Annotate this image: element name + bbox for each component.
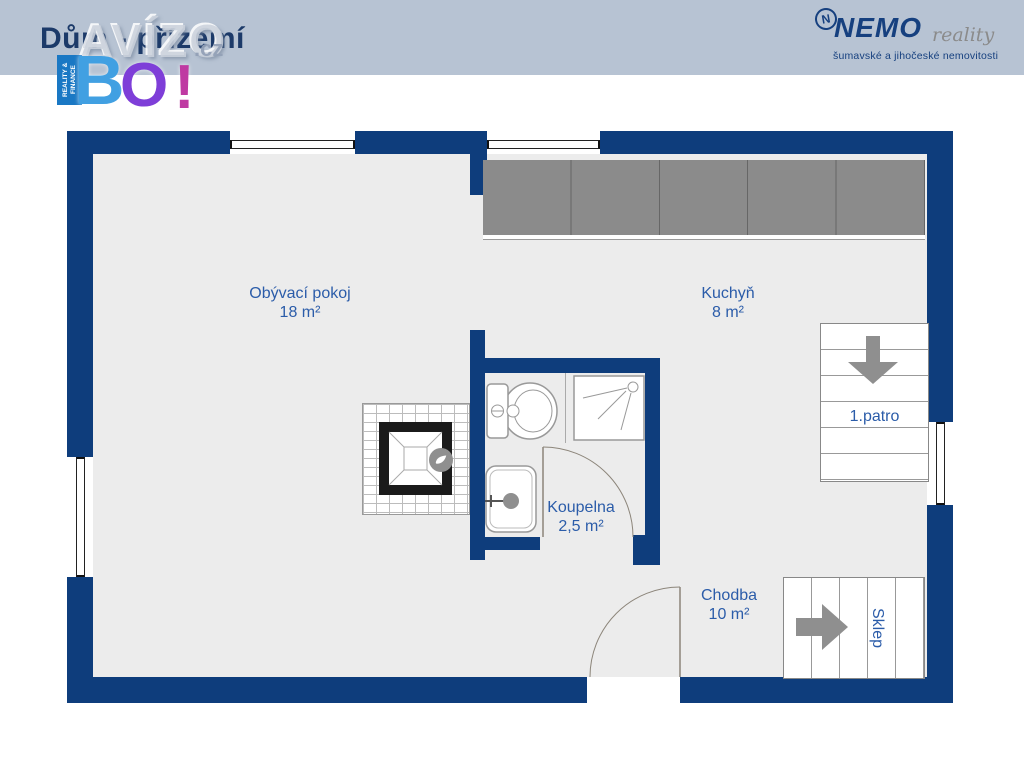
room-name: Koupelna <box>521 498 641 517</box>
shower-partition <box>565 373 566 443</box>
room-name: Obývací pokoj <box>180 284 420 303</box>
wall-top-mid <box>355 131 487 154</box>
flame-leaf-icon <box>432 451 450 469</box>
staircase-cellar: Sklep <box>783 577 925 679</box>
nemo-logo-tagline: šumavské a jihočeské nemovitosti <box>833 50 998 62</box>
window-pane <box>76 457 85 577</box>
kitchen-counter-edge <box>483 235 925 240</box>
wall-bathroom-bottom <box>485 537 540 550</box>
room-area: 18 m² <box>180 303 420 322</box>
wall-bathroom-right <box>645 373 660 535</box>
entry-door-arc <box>587 586 681 678</box>
wall-right-lower <box>927 505 953 703</box>
page-title: Dům - přízemí <box>40 22 245 56</box>
staircase-upper-floor: 1.patro <box>820 323 929 482</box>
nemo-logo-suffix: reality <box>932 24 994 46</box>
wall-bottom-left <box>67 677 587 703</box>
room-area: 10 m² <box>669 605 789 624</box>
window-pane <box>487 140 600 149</box>
wall-bathroom-top <box>470 358 660 373</box>
window-pane <box>936 422 945 505</box>
room-label-kitchen: Kuchyň 8 m² <box>608 284 848 322</box>
stairs-down-arrow-icon <box>848 336 898 386</box>
wall-bathroom-corner <box>633 535 660 565</box>
room-area: 8 m² <box>608 303 848 322</box>
window-left-living <box>67 457 93 577</box>
window-top-living <box>230 131 355 154</box>
room-name: Kuchyň <box>608 284 848 303</box>
stairs-down-label: Sklep <box>864 578 890 678</box>
window-right-stairs <box>927 422 953 505</box>
room-area: 2,5 m² <box>521 517 641 536</box>
room-name: Chodba <box>669 586 789 605</box>
room-label-hallway: Chodba 10 m² <box>669 586 789 624</box>
wall-right-upper <box>927 131 953 422</box>
stairs-right-arrow-icon <box>796 604 848 650</box>
window-top-kitchen <box>487 131 600 154</box>
wall-top-right <box>600 131 953 154</box>
window-pane <box>230 140 355 149</box>
toilet-icon <box>485 378 561 444</box>
shower-icon <box>573 375 645 441</box>
room-label-bathroom: Koupelna 2,5 m² <box>521 498 641 536</box>
kitchen-counter-units <box>483 160 925 235</box>
stove-flue-badge <box>429 448 453 472</box>
wall-bottom-right <box>680 677 953 703</box>
nemo-logo-name: NEMO <box>834 12 922 44</box>
room-label-living: Obývací pokoj 18 m² <box>180 284 420 322</box>
stairs-up-label: 1.patro <box>821 408 928 426</box>
wall-left-upper <box>67 131 93 457</box>
